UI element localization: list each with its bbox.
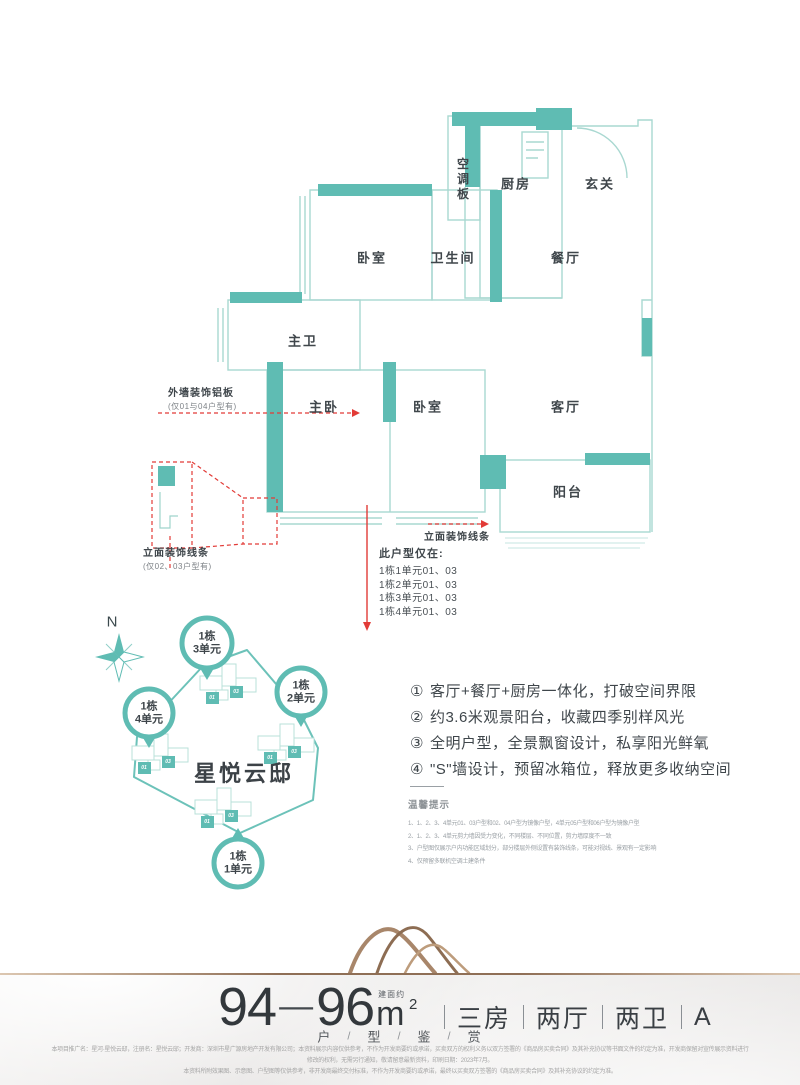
highlight-text: "S"墙设计，预留冰箱位，释放更多收纳空间 [430, 761, 731, 778]
subtitle-slash: / [347, 1030, 352, 1042]
area-dash: — [279, 987, 313, 1026]
availability-item: 1栋3单元01、03 [379, 592, 457, 606]
highlight-number: ③ [410, 735, 424, 752]
availability-block: 此户型仅在: 1栋1单元01、03 1栋2单元01、03 1栋3单元01、03 … [379, 545, 457, 619]
pin-unit-4: 1栋 4单元 [135, 701, 163, 726]
pin-line2: 3单元 [193, 643, 221, 656]
annotation-facade-right-label: 立面装饰线条 [424, 528, 490, 543]
mountain-logo-icon [350, 928, 469, 973]
spec-baths: 两卫 [615, 999, 669, 1035]
room-label-bathroom: 卫生间 [430, 248, 475, 267]
unit-tag-01: 01 [267, 755, 273, 761]
facade-detail-outline [160, 492, 178, 528]
unit-tag-03: 03 [233, 689, 239, 695]
annotation-wall-panel-label: 外墙装饰铝板 [168, 384, 237, 399]
highlights-list: ①客厅+餐厅+厨房一体化，打破空间界限 ②约3.6米观景阳台，收藏四季别样风光 … [410, 679, 731, 783]
compass-icon [95, 633, 143, 681]
flyer-page: 空调板 厨房 玄关 卧室 卫生间 餐厅 主卫 主卧 卧室 客厅 阳台 外墙装饰铝… [0, 0, 800, 1085]
facade-detail-block [158, 466, 175, 486]
spec-separator [523, 1005, 524, 1029]
floor-plan-thick-walls [230, 108, 652, 512]
tips-note: 1、1、2、3、4单元01、03户型和02、04户型为镜像户型，4单元05户型和… [408, 818, 656, 831]
subtitle-char: 型 [367, 1027, 382, 1046]
legal-line: 修改的权利，无需另行通知，敬请留意最新资料，印刷日期：2023年7月。 [0, 1056, 800, 1067]
pin-line1: 1栋 [287, 680, 315, 693]
highlight-number: ④ [410, 761, 424, 778]
availability-item: 1栋1单元01、03 [379, 565, 457, 579]
pin-line2: 4单元 [135, 713, 163, 726]
tips-note: 3、户型图仅展示户内功能区域划分，部分楼层外侧设置有装饰线条，可能对视线、景观有… [408, 843, 656, 856]
spec-separator [681, 1005, 682, 1029]
unit-tag-03: 03 [291, 749, 297, 755]
subtitle-slash: / [397, 1030, 402, 1042]
room-label-kitchen: 厨房 [501, 174, 531, 193]
spec-separator [602, 1005, 603, 1029]
room-label-master-bedroom: 主卧 [309, 397, 339, 416]
annotation-wall-panel: 外墙装饰铝板 (仅01与04户型有) [168, 384, 237, 412]
pin-unit-3: 1栋 3单元 [193, 631, 221, 656]
spec-separator [444, 1005, 445, 1029]
subtitle-char: 户 [317, 1027, 332, 1046]
annotation-facade-left-label: 立面装饰线条 [143, 544, 212, 559]
highlight-text: 客厅+餐厅+厨房一体化，打破空间界限 [430, 683, 697, 700]
annotation-facade-left: 立面装饰线条 (仅02、03户型有) [143, 544, 212, 572]
subtitle: 户 / 型 / 鉴 / 赏 [317, 1027, 482, 1046]
room-label-master-bath: 主卫 [288, 331, 318, 350]
highlights-divider [410, 786, 444, 787]
availability-item: 1栋2单元01、03 [379, 579, 457, 593]
tips-note: 4、仅预留多联机空调土建条件 [408, 856, 656, 869]
room-label-bedroom-bottom: 卧室 [413, 397, 443, 416]
highlight-text: 约3.6米观景阳台，收藏四季别样风光 [430, 709, 685, 726]
highlight-number: ② [410, 709, 424, 726]
area-note: 建面约 [378, 989, 405, 1000]
room-label-dining: 餐厅 [551, 248, 581, 267]
pin-line2: 2单元 [287, 692, 315, 705]
unit-tag-01: 01 [209, 695, 215, 701]
unit-tag-03: 03 [165, 759, 171, 765]
subtitle-slash: / [448, 1030, 453, 1042]
spec-halls: 两厅 [536, 999, 590, 1035]
highlight-item: ②约3.6米观景阳台，收藏四季别样风光 [410, 705, 731, 731]
pin-unit-1: 1栋 1单元 [224, 851, 252, 876]
subtitle-char: 赏 [468, 1027, 483, 1046]
highlight-item: ①客厅+餐厅+厨房一体化，打破空间界限 [410, 679, 731, 705]
annotation-wall-panel-note: (仅01与04户型有) [168, 401, 237, 412]
area-superscript: 2 [409, 996, 417, 1013]
tips-note: 2、1、2、3、4单元剪力墙因受力变化，不同楼层、不同位置，剪力墙厚度不一致 [408, 831, 656, 844]
availability-title: 此户型仅在: [379, 545, 457, 561]
room-label-living: 客厅 [551, 397, 581, 416]
unit-tag-01: 01 [141, 765, 147, 771]
legal-text: 本项目推广名：星河·星悦云邸，注册名：星悦云邸；开发商：深圳市星广源房地产开发有… [0, 1045, 800, 1078]
pin-unit-2: 1栋 2单元 [287, 680, 315, 705]
highlight-item: ④"S"墙设计，预留冰箱位，释放更多收纳空间 [410, 757, 731, 783]
pin-line1: 1栋 [224, 851, 252, 864]
pin-line1: 1栋 [193, 631, 221, 644]
annotation-facade-right: 立面装饰线条 [424, 528, 490, 543]
tips-title: 温馨提示 [408, 797, 656, 811]
subtitle-char: 鉴 [418, 1027, 433, 1046]
unit-tag-03: 03 [228, 813, 234, 819]
legal-line: 本项目推广名：星河·星悦云邸，注册名：星悦云邸；开发商：深圳市星广源房地产开发有… [0, 1045, 800, 1056]
tips-block: 温馨提示 1、1、2、3、4单元01、03户型和02、04户型为镜像户型，4单元… [408, 797, 656, 868]
area-from: 94 [218, 976, 276, 1038]
project-name: 星悦云邸 [194, 756, 294, 788]
room-label-entry: 玄关 [585, 174, 615, 193]
highlight-item: ③全明户型，全景飘窗设计，私享阳光鲜氧 [410, 731, 731, 757]
legal-line: 本资料所附效果图、示意图、户型图等仅供参考，非开发商最终交付标准，不作为开发商要… [0, 1067, 800, 1078]
room-label-ac-board: 空调板 [455, 158, 472, 203]
unit-tag-01: 01 [204, 819, 210, 825]
availability-item: 1栋4单元01、03 [379, 606, 457, 620]
room-label-bedroom-top: 卧室 [357, 248, 387, 267]
highlight-text: 全明户型，全景飘窗设计，私享阳光鲜氧 [430, 735, 709, 752]
highlight-number: ① [410, 683, 424, 700]
line-art [0, 0, 800, 1085]
pin-line1: 1栋 [135, 701, 163, 714]
spec-type: A [694, 1003, 713, 1032]
room-label-balcony: 阳台 [553, 482, 583, 501]
pin-line2: 1单元 [224, 863, 252, 876]
annotation-facade-left-note: (仅02、03户型有) [143, 561, 212, 572]
balcony-deco-lines [505, 538, 648, 548]
compass-north-label: N [107, 614, 118, 631]
